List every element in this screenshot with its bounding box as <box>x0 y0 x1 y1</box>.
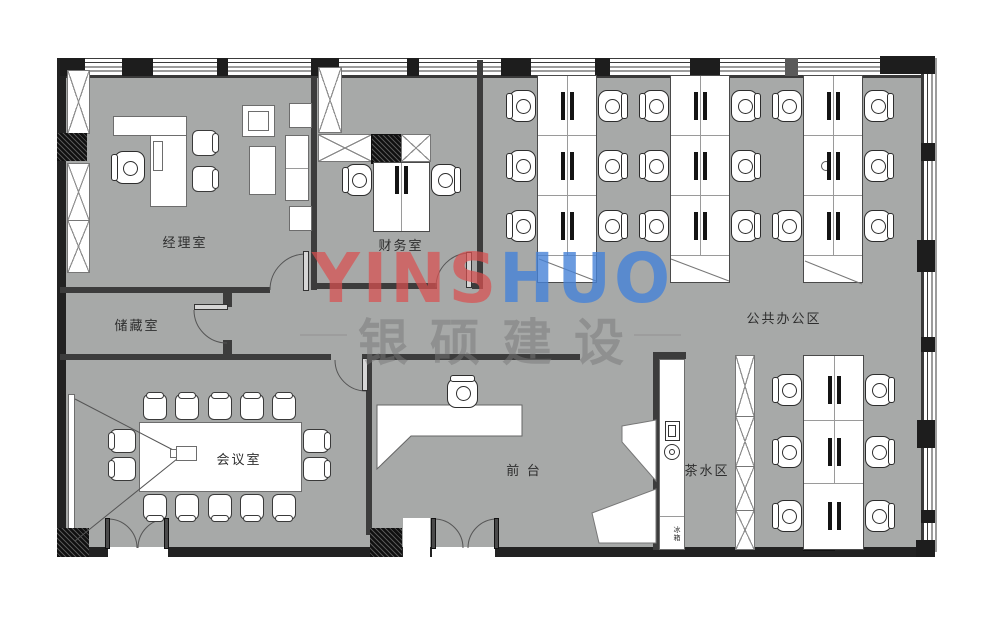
door-leaf-hallway <box>362 358 368 391</box>
coffee-table <box>249 146 276 195</box>
office-floor-plan: 冰箱 经理室 财务室 储藏室 会议室 前 台 茶水区 公共办公区 YINSHUO… <box>0 0 1000 621</box>
desk-divider <box>700 76 701 255</box>
door-post <box>431 518 436 549</box>
cabinet <box>735 510 755 550</box>
meeting-chair-icon <box>110 457 136 481</box>
column <box>880 56 935 74</box>
office-chair-icon <box>642 90 669 122</box>
monitor-icon <box>561 92 565 120</box>
room-label-manager: 经理室 <box>145 232 225 251</box>
column <box>595 58 610 76</box>
cabinet <box>318 134 372 162</box>
monitor-icon <box>836 152 840 180</box>
desk-divider <box>567 76 568 255</box>
office-chair-icon <box>642 210 669 242</box>
entrance-recess <box>403 518 430 557</box>
room-label-open-office: 公共办公区 <box>714 308 854 327</box>
office-chair-icon <box>598 210 625 242</box>
monitor-icon <box>694 212 698 240</box>
monitor-icon <box>837 376 841 404</box>
guest-chair-icon <box>192 130 217 156</box>
column <box>785 58 798 76</box>
monitor-icon <box>570 92 574 120</box>
watermark-rule-right <box>634 334 681 336</box>
desk-divider <box>538 195 596 196</box>
monitor-icon <box>694 92 698 120</box>
office-chair-icon <box>775 374 802 406</box>
meeting-chair-icon <box>143 394 167 420</box>
monitor-icon <box>570 212 574 240</box>
column <box>921 143 935 161</box>
desk-divider <box>401 163 402 231</box>
watermark-rule-left <box>300 334 347 336</box>
monitor-icon <box>827 92 831 120</box>
office-chair-icon <box>775 500 802 532</box>
desk-divider <box>538 135 596 136</box>
desk-divider <box>804 420 863 421</box>
desk-divider <box>671 255 729 256</box>
projection-screen <box>68 394 75 545</box>
meeting-chair-icon <box>175 394 199 420</box>
monitor-icon <box>404 166 408 194</box>
desk-divider <box>538 255 596 256</box>
office-chair-icon <box>598 150 625 182</box>
office-chair-icon <box>509 210 536 242</box>
office-chair-icon <box>865 436 892 468</box>
wall-tea-north <box>653 352 686 359</box>
sink-drain <box>669 449 675 455</box>
counter-divider <box>660 516 684 517</box>
armchair-cushion <box>248 111 269 131</box>
desk-divider <box>671 135 729 136</box>
side-table <box>289 206 312 231</box>
column <box>921 510 935 523</box>
office-chair-icon <box>447 378 478 408</box>
water-dispenser-inner <box>668 425 676 437</box>
office-chair-icon <box>642 150 669 182</box>
desk-divider <box>671 195 729 196</box>
office-chair-icon <box>865 374 892 406</box>
office-chair-icon <box>864 210 891 242</box>
door-leaf-finance <box>466 252 472 288</box>
meeting-chair-icon <box>240 394 264 420</box>
curtain-wall-right <box>921 58 937 552</box>
monitor-icon <box>828 502 832 530</box>
room-label-storage: 储藏室 <box>97 315 177 334</box>
wall-storage-east-stub <box>223 340 232 360</box>
column <box>407 58 419 76</box>
office-chair-icon <box>114 151 145 184</box>
cabinet <box>67 70 90 134</box>
monitor-icon <box>703 212 707 240</box>
column <box>916 540 935 557</box>
cabinet <box>401 134 431 162</box>
meeting-chair-icon <box>303 429 329 453</box>
monitor-icon <box>570 152 574 180</box>
door-opening <box>108 547 168 557</box>
monitor-icon <box>703 92 707 120</box>
meeting-chair-icon <box>240 494 264 520</box>
cabinet <box>735 355 755 417</box>
office-chair-icon <box>865 500 892 532</box>
door-post <box>164 518 169 549</box>
column-hatched <box>57 528 89 557</box>
office-chair-icon <box>775 90 802 122</box>
office-chair-icon <box>345 164 372 196</box>
room-label-finance: 财务室 <box>361 235 441 254</box>
monitor-icon <box>836 92 840 120</box>
desk-divider <box>804 483 863 484</box>
meeting-chair-icon <box>208 394 232 420</box>
wall-storage-south <box>60 354 331 360</box>
monitor-icon <box>837 438 841 466</box>
meeting-chair-icon <box>272 394 296 420</box>
cabinet <box>318 67 342 133</box>
office-chair-icon <box>864 150 891 182</box>
desk-divider <box>804 195 862 196</box>
column <box>690 58 720 76</box>
column-hatched <box>57 133 87 161</box>
office-chair-icon <box>509 90 536 122</box>
fridge-label: 冰箱 <box>663 521 681 547</box>
office-chair-icon <box>864 90 891 122</box>
projector-lens <box>170 449 177 458</box>
office-chair-icon <box>731 90 758 122</box>
manager-desk <box>113 116 187 136</box>
monitor-icon <box>837 502 841 530</box>
column <box>917 420 935 448</box>
column <box>122 58 153 76</box>
office-chair-icon <box>509 150 536 182</box>
desk-divider <box>833 76 834 255</box>
room-label-tea: 茶水区 <box>667 460 747 479</box>
desk-divider <box>804 135 862 136</box>
monitor-icon <box>561 152 565 180</box>
column <box>917 240 935 272</box>
office-chair-icon <box>775 436 802 468</box>
office-chair-icon <box>731 150 758 182</box>
door-leaf-manager <box>303 251 309 291</box>
monitor-icon <box>703 152 707 180</box>
meeting-chair-icon <box>303 457 329 481</box>
monitor-icon <box>827 212 831 240</box>
monitor-icon <box>828 376 832 404</box>
meeting-chair-icon <box>175 494 199 520</box>
office-chair-icon <box>775 210 802 242</box>
monitor-icon <box>828 438 832 466</box>
wall-finance-west <box>311 60 317 290</box>
guest-chair-icon <box>192 166 217 192</box>
office-chair-icon <box>431 164 458 196</box>
desk-divider <box>804 255 862 256</box>
monitor-icon <box>694 152 698 180</box>
desk-monitor <box>153 141 163 171</box>
meeting-chair-icon <box>272 494 296 520</box>
cabinet <box>67 163 90 221</box>
room-label-reception: 前 台 <box>484 460 564 479</box>
door-leaf-storage <box>194 304 228 310</box>
office-chair-icon <box>731 210 758 242</box>
door-post <box>105 518 110 549</box>
sofa-seam <box>286 168 308 169</box>
office-chair-icon <box>598 90 625 122</box>
projector-icon <box>176 446 197 461</box>
door-opening <box>432 547 495 557</box>
meeting-chair-icon <box>143 494 167 520</box>
column <box>921 337 935 352</box>
monitor-icon <box>395 166 399 194</box>
column <box>501 58 531 76</box>
wall-finance-east <box>477 60 483 289</box>
column <box>217 58 228 76</box>
door-post <box>494 518 499 549</box>
column-hatched <box>370 528 402 557</box>
monitor-icon <box>836 212 840 240</box>
meeting-chair-icon <box>208 494 232 520</box>
cabinet-hatched <box>371 134 404 164</box>
side-table <box>289 103 312 128</box>
wall-manager-south <box>60 287 270 293</box>
wall-finance-south <box>317 283 437 289</box>
meeting-chair-icon <box>110 429 136 453</box>
wall-reception-north <box>372 354 580 360</box>
room-label-meeting: 会议室 <box>199 449 279 468</box>
cabinet <box>67 220 90 273</box>
monitor-icon <box>827 152 831 180</box>
monitor-icon <box>561 212 565 240</box>
